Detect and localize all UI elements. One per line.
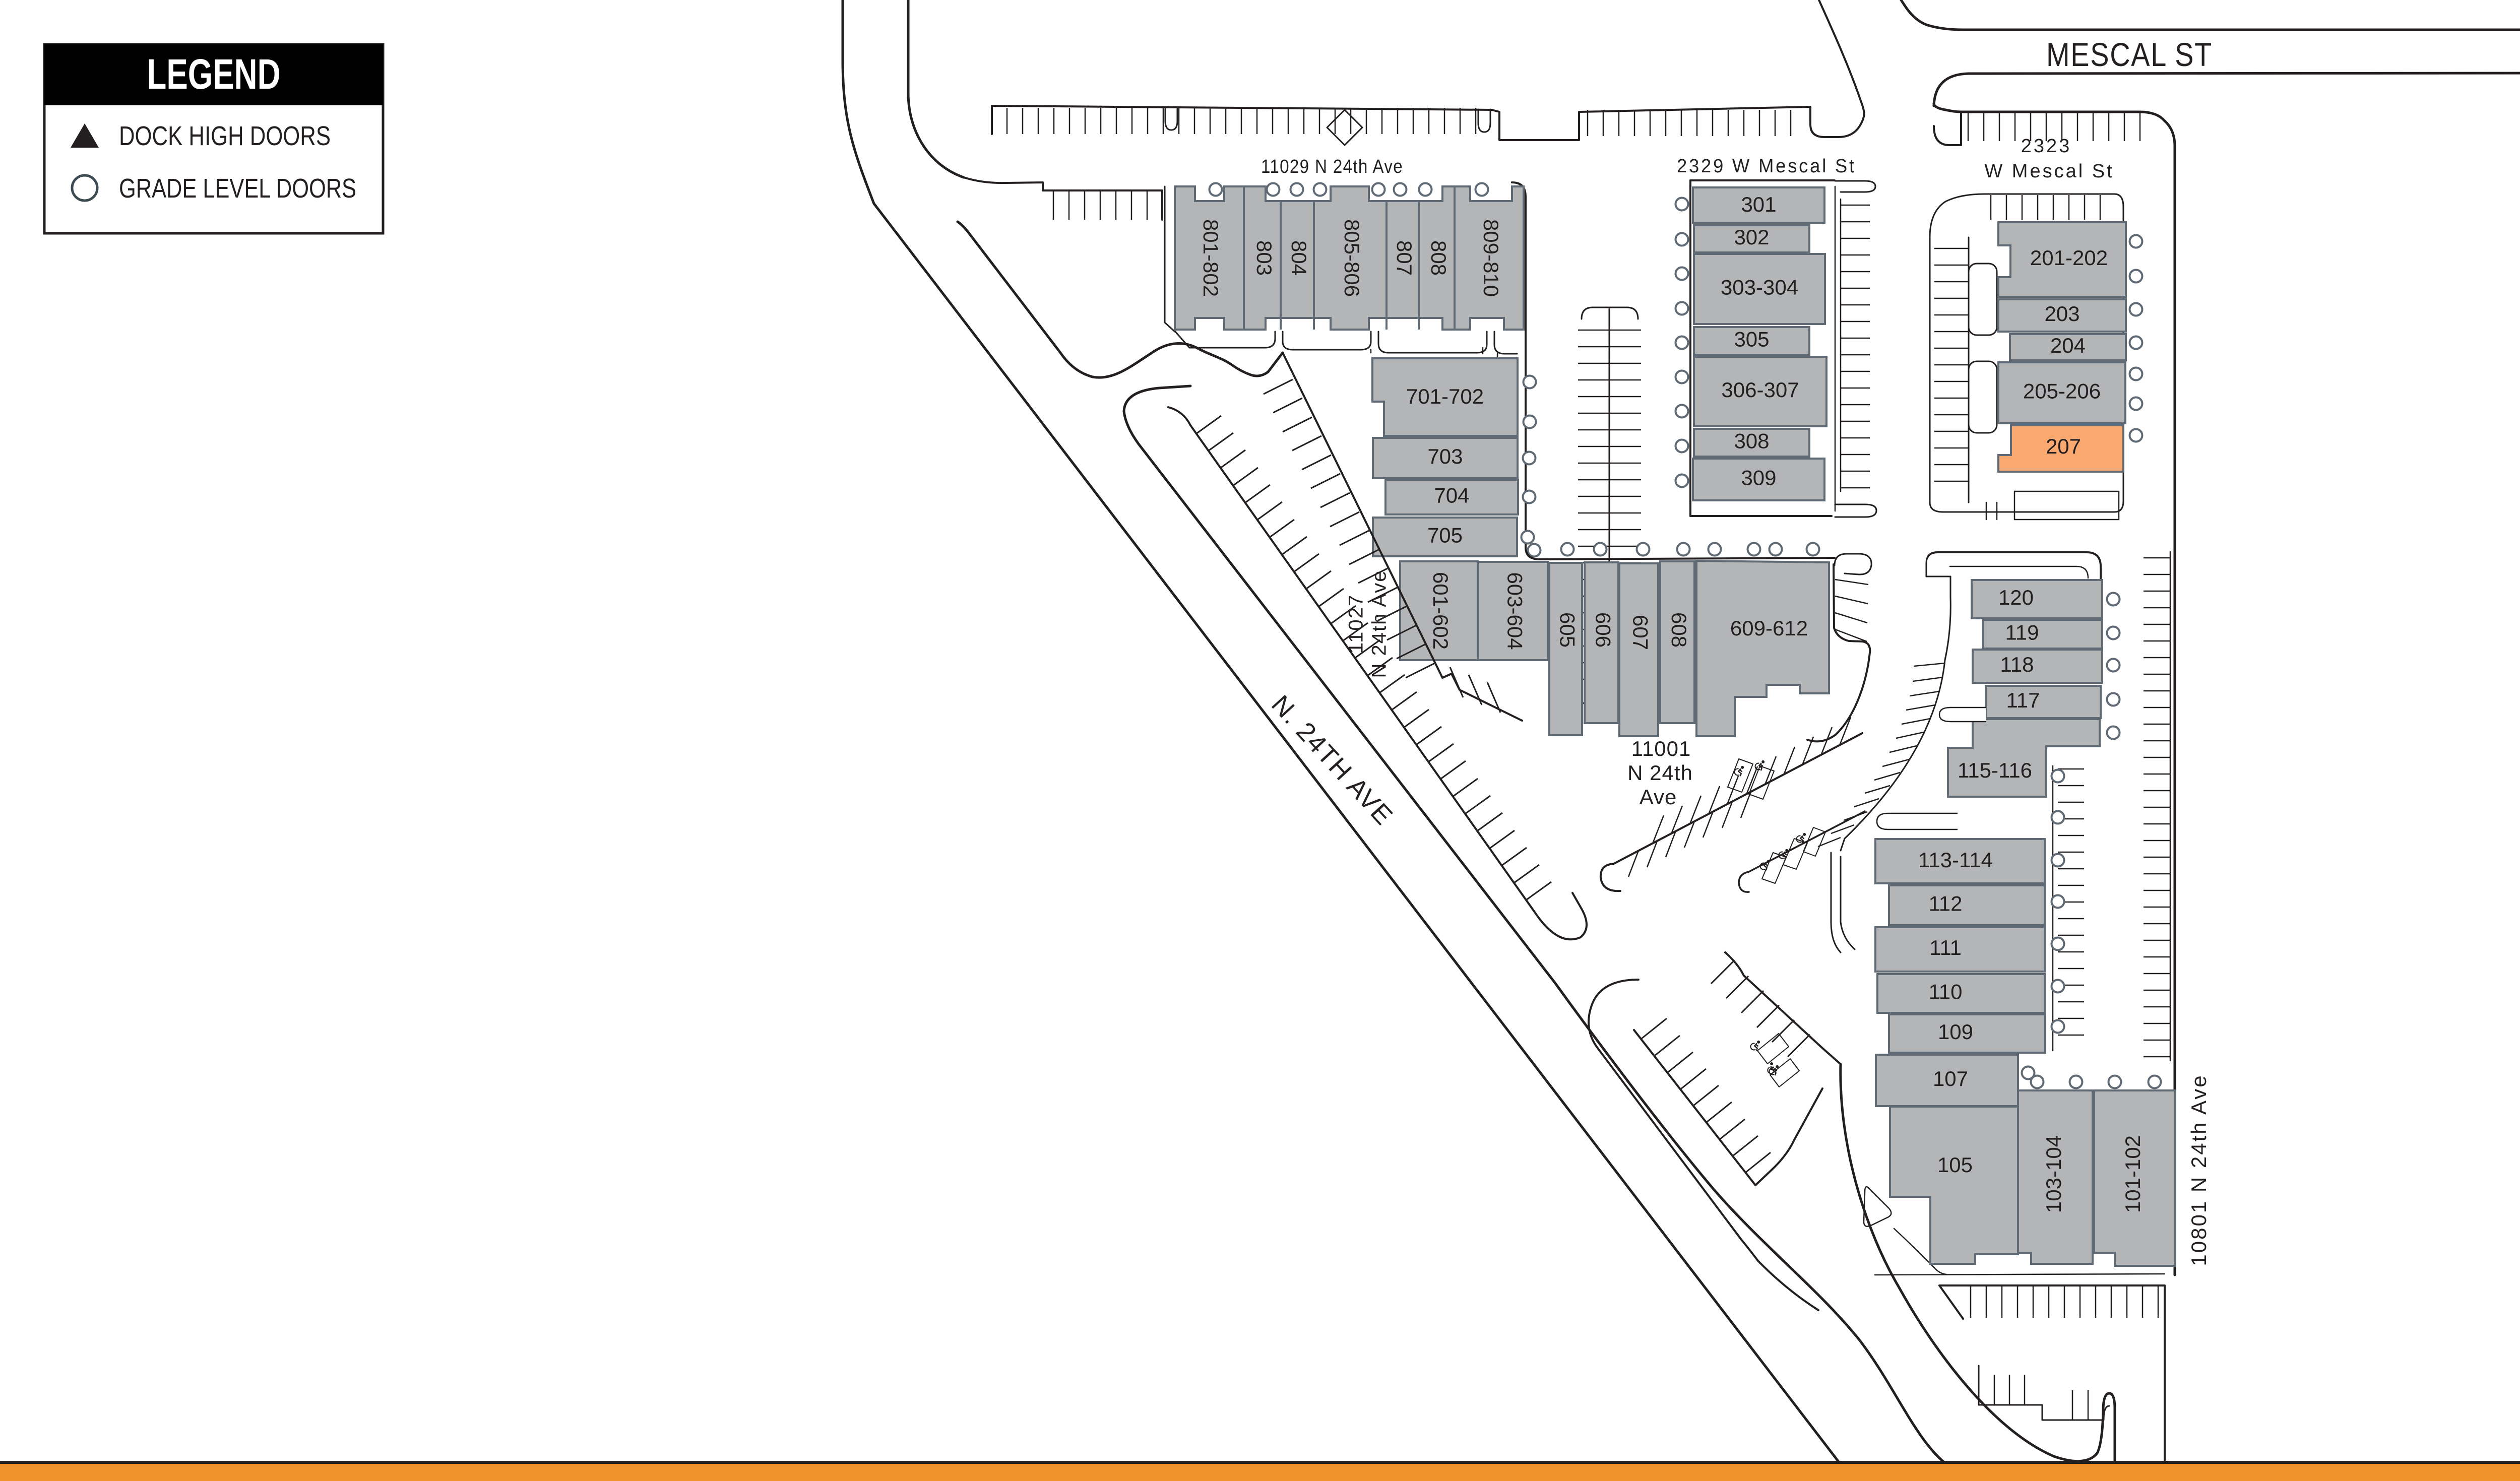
svg-text:605: 605 <box>1555 612 1579 648</box>
svg-text:Ave: Ave <box>1640 785 1677 809</box>
svg-text:101-102: 101-102 <box>2121 1135 2145 1213</box>
svg-text:201-202: 201-202 <box>2030 246 2108 270</box>
svg-text:N 24th: N 24th <box>1627 761 1693 785</box>
svg-text:2329 W Mescal St: 2329 W Mescal St <box>1677 156 1856 177</box>
svg-text:LEGEND: LEGEND <box>147 50 281 98</box>
svg-text:301: 301 <box>1741 192 1776 216</box>
svg-text:809-810: 809-810 <box>1479 219 1503 297</box>
svg-text:601-602: 601-602 <box>1429 572 1453 650</box>
svg-text:105: 105 <box>1937 1153 1973 1177</box>
svg-text:111: 111 <box>1929 936 1962 959</box>
svg-text:302: 302 <box>1734 225 1769 249</box>
svg-text:103-104: 103-104 <box>2042 1135 2065 1213</box>
svg-text:305: 305 <box>1734 328 1769 351</box>
svg-text:GRADE LEVEL DOORS: GRADE LEVEL DOORS <box>119 173 356 204</box>
svg-text:309: 309 <box>1741 466 1776 490</box>
svg-text:120: 120 <box>1998 586 2034 609</box>
svg-text:2323: 2323 <box>2021 136 2072 157</box>
svg-text:805-806: 805-806 <box>1340 219 1364 297</box>
svg-text:204: 204 <box>2050 334 2086 357</box>
svg-text:804: 804 <box>1287 240 1311 276</box>
svg-text:107: 107 <box>1933 1067 1968 1090</box>
svg-text:113-114: 113-114 <box>1918 848 1993 872</box>
svg-text:109: 109 <box>1938 1020 1973 1044</box>
svg-text:608: 608 <box>1667 612 1691 648</box>
svg-text:703: 703 <box>1427 444 1463 468</box>
svg-text:119: 119 <box>2005 621 2039 645</box>
svg-text:11027: 11027 <box>1345 594 1367 654</box>
svg-text:801-802: 801-802 <box>1199 219 1223 297</box>
svg-text:303-304: 303-304 <box>1721 276 1798 299</box>
svg-text:203: 203 <box>2044 302 2080 326</box>
svg-text:117: 117 <box>2006 688 2040 712</box>
svg-text:205-206: 205-206 <box>2023 379 2101 403</box>
svg-text:306-307: 306-307 <box>1721 378 1799 402</box>
svg-text:207: 207 <box>2046 434 2081 458</box>
svg-text:803: 803 <box>1252 240 1276 276</box>
svg-text:11029 N 24th Ave: 11029 N 24th Ave <box>1261 156 1403 177</box>
svg-text:606: 606 <box>1591 612 1615 648</box>
svg-text:MESCAL ST: MESCAL ST <box>2046 36 2213 73</box>
svg-text:308: 308 <box>1734 429 1769 453</box>
svg-text:110: 110 <box>1929 980 1963 1004</box>
svg-text:807: 807 <box>1393 240 1416 276</box>
svg-text:115-116: 115-116 <box>1958 758 2032 782</box>
svg-text:704: 704 <box>1434 484 1469 507</box>
svg-text:603-604: 603-604 <box>1503 572 1527 650</box>
svg-text:607: 607 <box>1628 615 1652 650</box>
svg-text:112: 112 <box>1929 892 1963 916</box>
svg-text:10801 N 24th Ave: 10801 N 24th Ave <box>2187 1074 2211 1266</box>
svg-text:118: 118 <box>2000 653 2034 676</box>
svg-text:W Mescal St: W Mescal St <box>1984 161 2114 182</box>
svg-text:11001: 11001 <box>1631 737 1691 760</box>
svg-text:705: 705 <box>1427 524 1463 547</box>
svg-text:701-702: 701-702 <box>1406 384 1484 408</box>
svg-text:808: 808 <box>1427 240 1451 276</box>
svg-text:DOCK HIGH DOORS: DOCK HIGH DOORS <box>119 121 331 151</box>
svg-text:609-612: 609-612 <box>1730 616 1808 640</box>
